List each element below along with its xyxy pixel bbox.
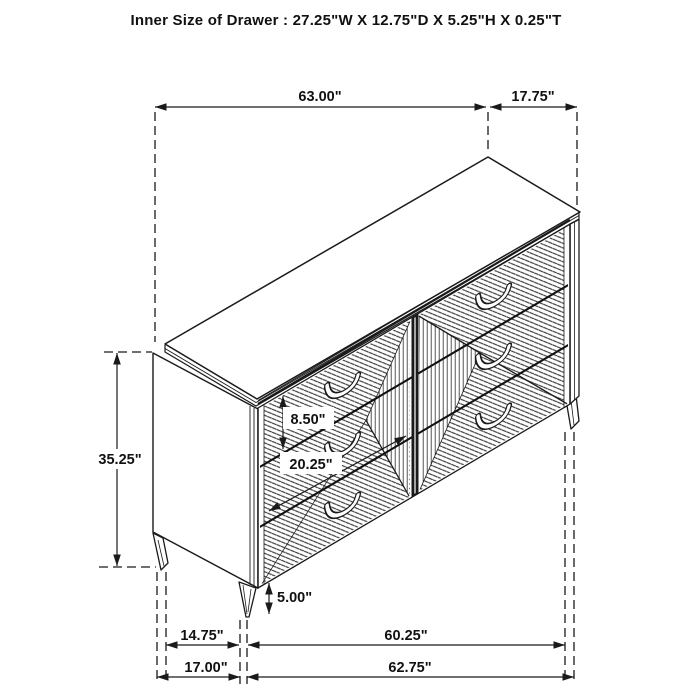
- dim-label-leg-height: 5.00": [277, 590, 312, 606]
- dresser-dimension-diagram: 63.00" 17.75" 35.25" 8.50" 20.25" 5.00" …: [0, 0, 700, 700]
- dim-label-drawer-width: 20.25": [289, 457, 332, 473]
- dim-label-width-inner: 60.25": [384, 628, 427, 644]
- front-left-leg: [239, 582, 256, 617]
- dim-label-width-outer: 62.75": [388, 660, 431, 676]
- dim-label-height: 35.25": [98, 452, 141, 468]
- dim-label-top-depth: 17.75": [511, 89, 554, 105]
- dim-label-depth-inner: 14.75": [180, 628, 223, 644]
- dim-label-drawer-height: 8.50": [290, 412, 325, 428]
- dresser-drawing: [153, 157, 580, 617]
- dim-label-top-width: 63.00": [298, 89, 341, 105]
- dim-label-depth-outer: 17.00": [184, 660, 227, 676]
